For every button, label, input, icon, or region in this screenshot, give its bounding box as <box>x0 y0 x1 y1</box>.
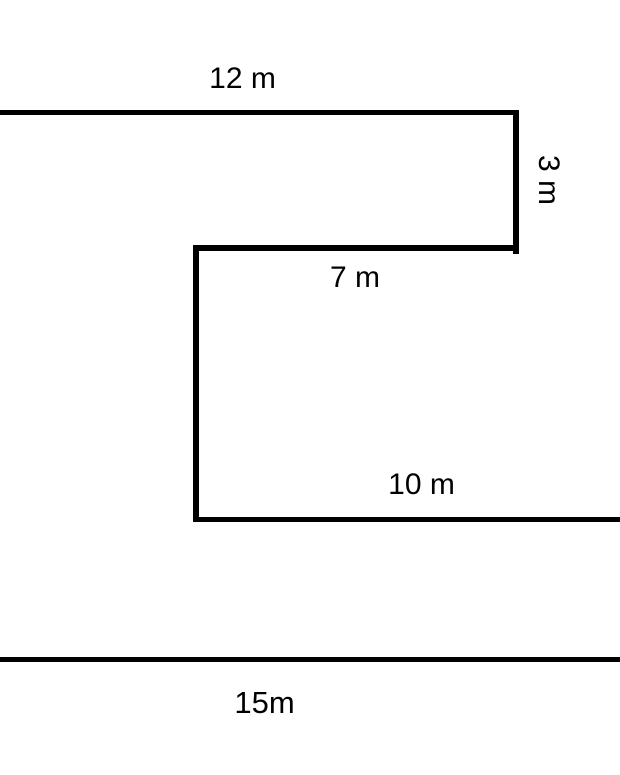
side-length-label-12m: 12 m <box>180 64 305 94</box>
side-length-label-3m-rotated: 3 m <box>533 155 563 205</box>
side-length-label-15m: 15m <box>202 687 327 718</box>
step-edge-line-7m <box>193 245 519 251</box>
right-edge-line-3m <box>513 110 519 254</box>
bottom-edge-line-15m <box>0 657 620 662</box>
lower-step-edge-line-10m <box>193 517 620 522</box>
composite-shape-diagram: 12 m 3 m 7 m 10 m 15m <box>0 0 620 775</box>
side-length-label-7m: 7 m <box>295 263 415 293</box>
middle-vertical-edge-line <box>193 245 199 522</box>
side-length-label-10m: 10 m <box>359 470 484 500</box>
top-edge-line-12m <box>0 110 519 115</box>
